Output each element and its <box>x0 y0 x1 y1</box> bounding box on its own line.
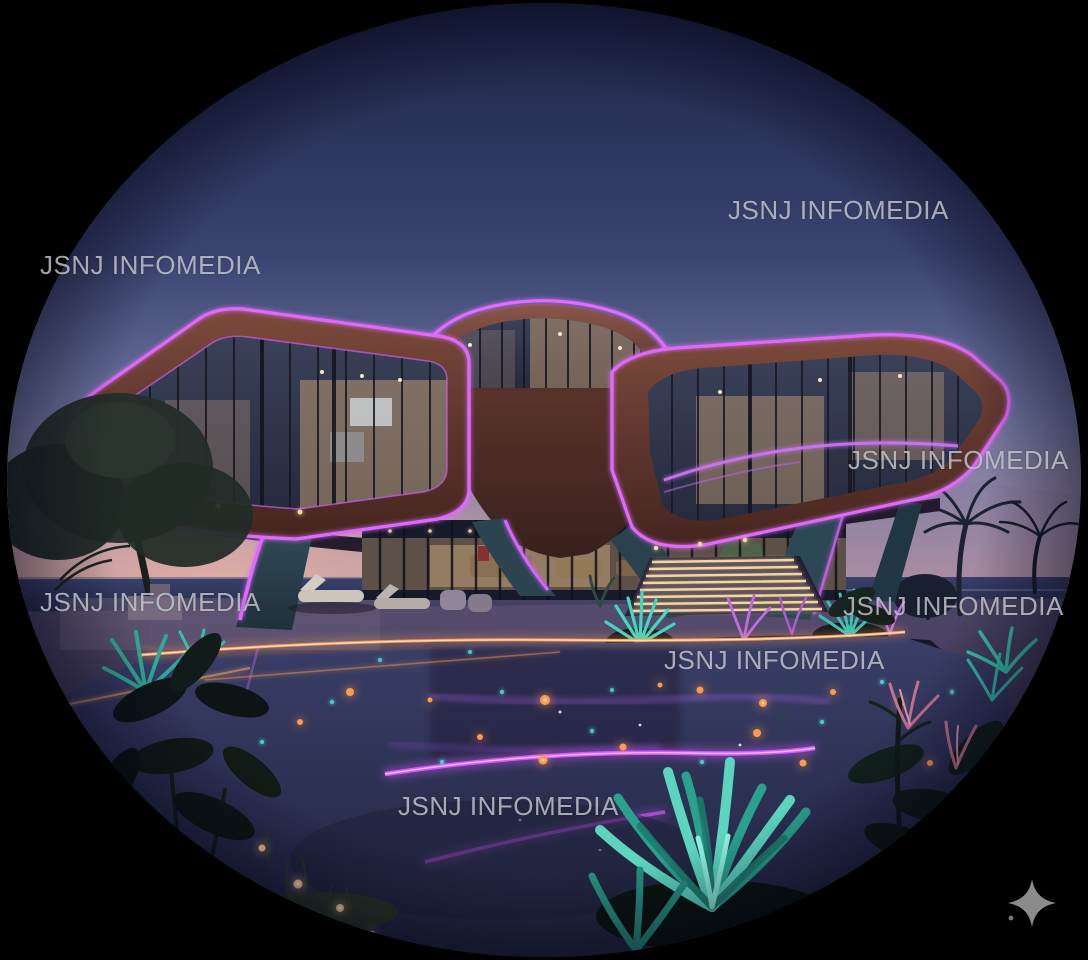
watermark: JSNJ INFOMEDIA <box>728 195 949 226</box>
watermark: JSNJ INFOMEDIA <box>848 445 1069 476</box>
watermark: JSNJ INFOMEDIA <box>40 587 261 618</box>
watermark: JSNJ INFOMEDIA <box>40 250 261 281</box>
ai-image-canvas: JSNJ INFOMEDIA JSNJ INFOMEDIA JSNJ INFOM… <box>0 0 1088 960</box>
watermark: JSNJ INFOMEDIA <box>843 591 1064 622</box>
watermark: JSNJ INFOMEDIA <box>664 645 885 676</box>
watermark: JSNJ INFOMEDIA <box>398 791 619 822</box>
sparkle-icon <box>1004 875 1060 931</box>
